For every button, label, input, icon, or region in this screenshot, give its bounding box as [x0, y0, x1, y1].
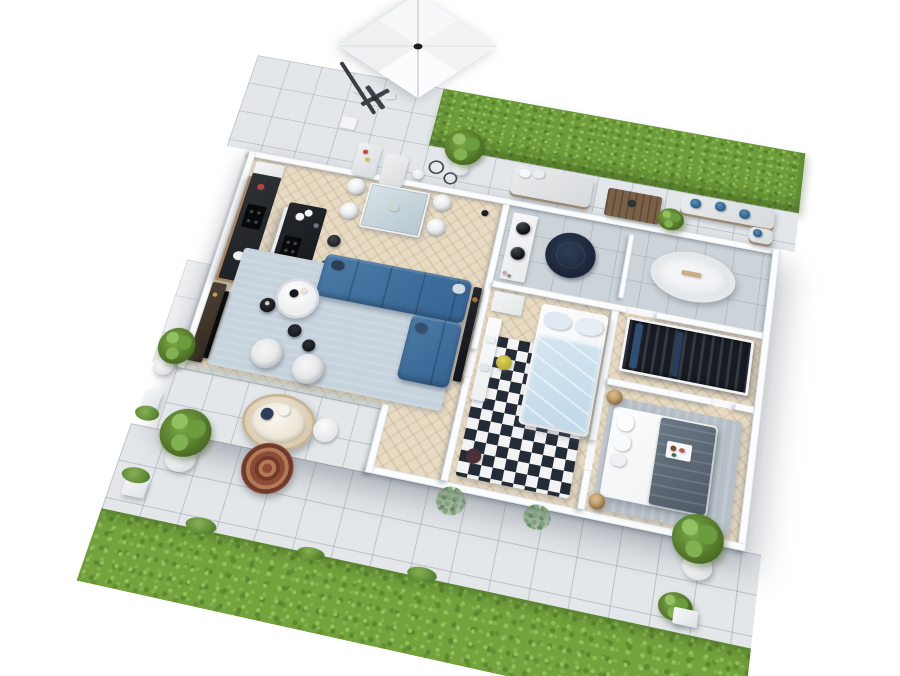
scene-perspective: [140, 30, 800, 670]
terrace-cube-table: [339, 116, 357, 130]
floorplan-world: [77, 55, 806, 676]
floorplan-render: [0, 0, 900, 676]
desk-papers-2: [479, 363, 490, 372]
umbrella-canopy: [339, 0, 497, 98]
patio-umbrella: [339, 0, 497, 98]
outdoor-sofa-pillow-2: [533, 170, 545, 179]
bedroom2-blanket: [648, 417, 716, 515]
